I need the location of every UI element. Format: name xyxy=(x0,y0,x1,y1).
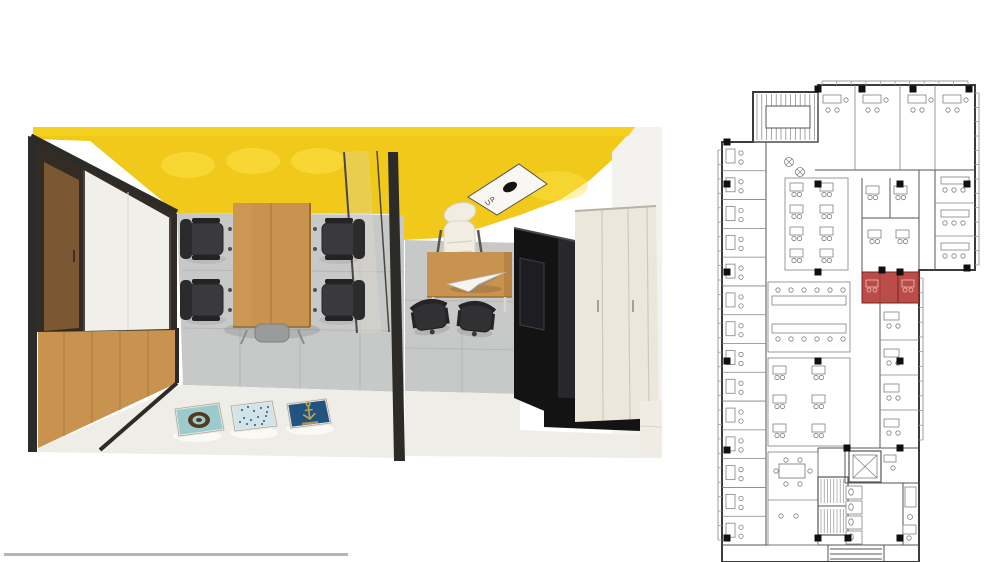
highlighted-room xyxy=(862,272,919,303)
wardrobe xyxy=(575,206,659,422)
floor-plan xyxy=(705,78,1000,562)
bottom-divider-line xyxy=(4,553,348,556)
interior-render-3d: UP xyxy=(28,118,662,464)
meeting-chair xyxy=(189,223,223,255)
left-wall-edge xyxy=(28,136,37,452)
meeting-chair xyxy=(322,223,356,255)
wood-door xyxy=(44,162,79,331)
guest-chair xyxy=(410,299,450,338)
ceiling-light-glow xyxy=(291,148,345,174)
poster xyxy=(231,401,277,431)
highlight-overlay xyxy=(862,272,919,303)
meeting-chair xyxy=(189,284,223,316)
guest-chair xyxy=(456,301,495,339)
tv-screen xyxy=(520,258,544,330)
ceiling-top-strip xyxy=(33,127,635,136)
meeting-chair xyxy=(322,284,356,316)
end-chair xyxy=(255,324,289,342)
slide-canvas: UP xyxy=(0,0,1000,562)
ceiling-light-glow xyxy=(226,148,280,174)
ceiling-light-glow xyxy=(161,152,215,178)
